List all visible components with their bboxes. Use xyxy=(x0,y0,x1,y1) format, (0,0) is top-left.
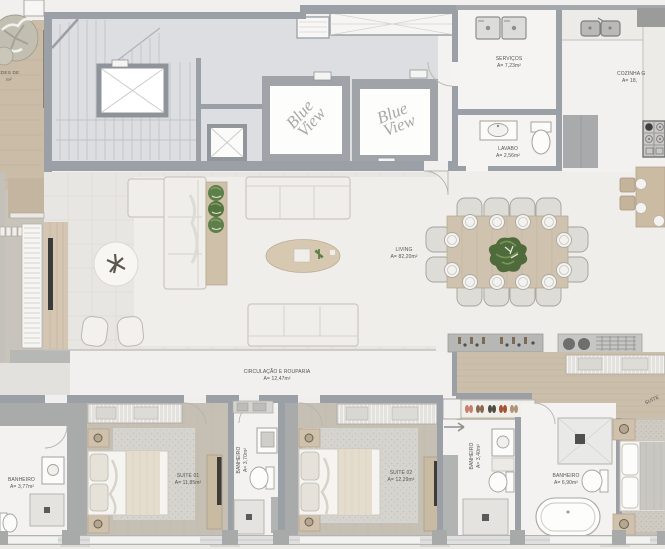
svg-text:SUITE 02: SUITE 02 xyxy=(390,470,413,476)
svg-text:m²: m² xyxy=(6,77,12,83)
svg-text:BANHEIRO: BANHEIRO xyxy=(8,477,35,483)
svg-text:A= 3,70m²: A= 3,70m² xyxy=(243,448,249,472)
svg-text:BANHEIRO: BANHEIRO xyxy=(469,443,475,470)
svg-text:A= 6,90m²: A= 6,90m² xyxy=(554,480,578,486)
svg-text:A= 7,23m²: A= 7,23m² xyxy=(497,63,521,69)
svg-text:LIVING: LIVING xyxy=(396,247,413,253)
svg-text:A= 82,20m²: A= 82,20m² xyxy=(391,254,418,260)
svg-text:A= 3,77m²: A= 3,77m² xyxy=(10,484,34,490)
svg-text:A= 18,: A= 18, xyxy=(622,78,637,84)
svg-text:A= 11,85m²: A= 11,85m² xyxy=(175,480,202,486)
svg-text:SERVIÇOS: SERVIÇOS xyxy=(496,56,523,62)
svg-text:A= 3,40m²: A= 3,40m² xyxy=(476,444,482,468)
svg-text:LAVABO: LAVABO xyxy=(498,146,518,152)
svg-text:REDES DE: REDES DE xyxy=(0,70,19,76)
svg-text:CIRCULAÇÃO E ROUPARIA: CIRCULAÇÃO E ROUPARIA xyxy=(244,368,311,375)
svg-text:A= 12,29m²: A= 12,29m² xyxy=(388,477,415,483)
svg-text:A= 2,56m²: A= 2,56m² xyxy=(496,153,520,159)
svg-text:BANHEIRO: BANHEIRO xyxy=(553,473,580,479)
svg-text:COZINHA G: COZINHA G xyxy=(617,71,645,77)
svg-text:SUITE 01: SUITE 01 xyxy=(177,473,200,479)
svg-text:BANHEIRO: BANHEIRO xyxy=(236,447,242,474)
svg-text:A= 12,47m²: A= 12,47m² xyxy=(264,376,291,382)
